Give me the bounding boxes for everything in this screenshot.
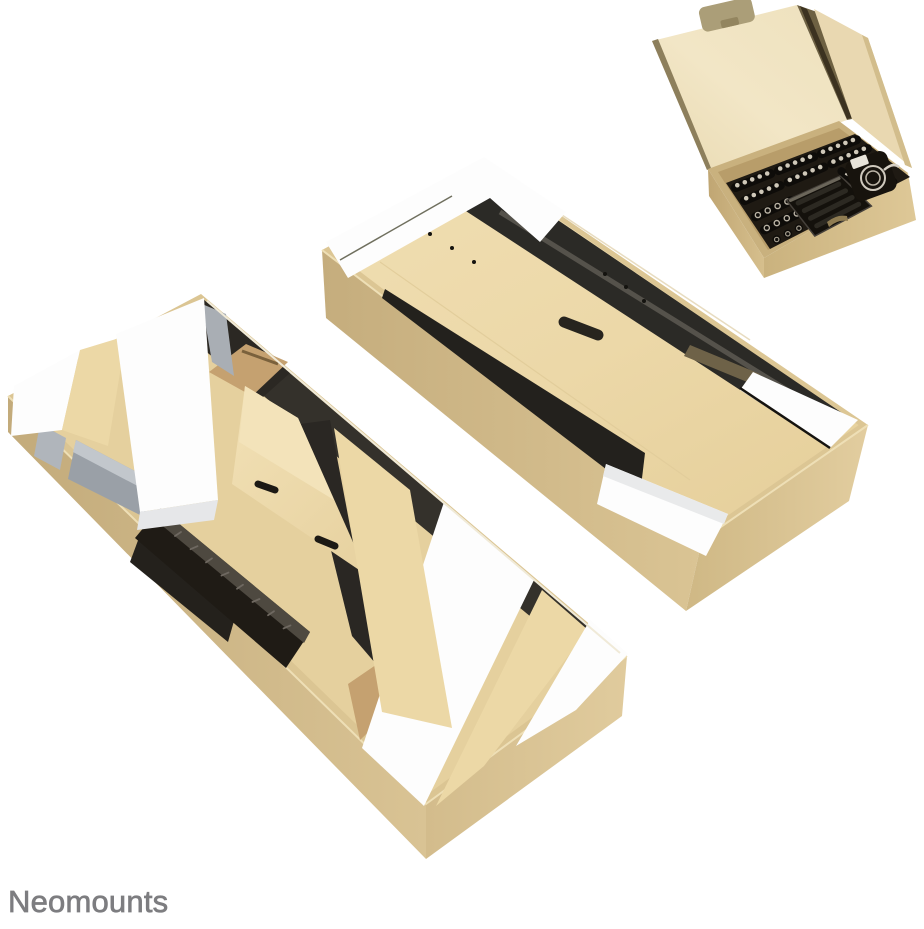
svg-text:Neomounts: Neomounts bbox=[8, 884, 168, 919]
